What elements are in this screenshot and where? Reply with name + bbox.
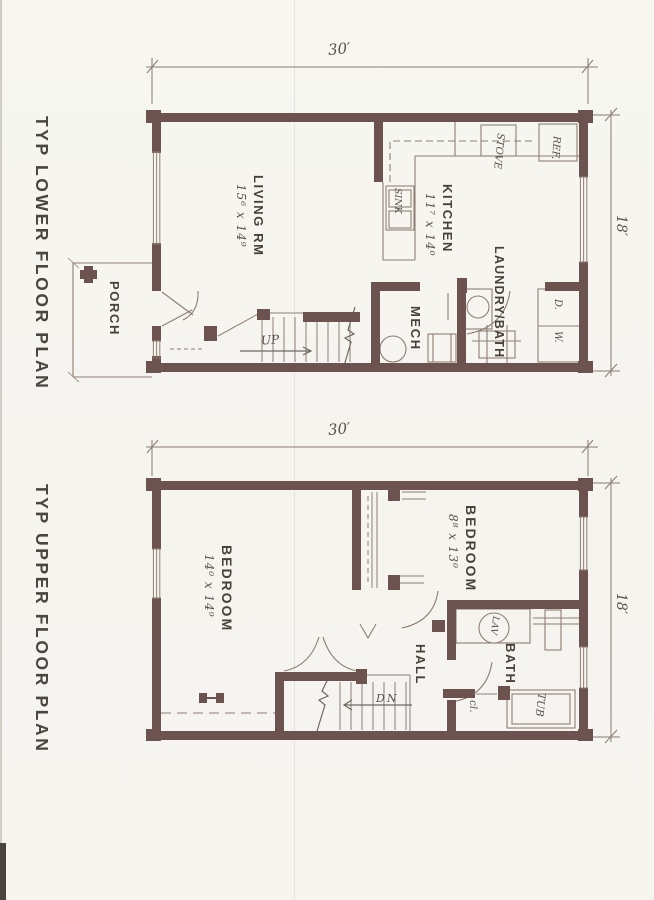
sink-label: SINK <box>392 188 403 214</box>
tub-label: TUB <box>533 692 547 717</box>
porch-post <box>80 266 97 283</box>
bedroom1-dims: 14⁰ x 14⁹ <box>202 554 216 632</box>
living-room-label: LIVING RM <box>251 175 266 257</box>
closet-wardrobe <box>368 492 426 588</box>
lower-plan-title: TYP LOWER FLOOR PLAN <box>31 116 52 390</box>
lower-plan-walls <box>146 110 593 373</box>
washer-label: W. <box>552 331 563 343</box>
bedroom2-dims: 8⁸ x 13⁰ <box>446 514 460 592</box>
bath-label: BATH <box>503 643 518 685</box>
water-heater-symbol <box>380 336 406 362</box>
lower-plan-windows <box>152 152 588 359</box>
upper-dim-width: 30′ <box>327 419 351 439</box>
fridge-label: REF. <box>549 136 562 160</box>
hall-label: HALL <box>413 644 428 685</box>
upper-plan-title: TYP UPPER FLOOR PLAN <box>31 484 52 753</box>
stairs-dn-label: DN <box>376 692 398 705</box>
bedroom2-label: BEDROOM <box>463 505 479 592</box>
kitchen-dims: 11⁷ x 14⁰ <box>423 193 437 257</box>
lower-plan <box>68 58 620 382</box>
closet-label: cl. <box>467 700 479 713</box>
bedroom2-label-group: 8⁸ x 13⁰ BEDROOM <box>446 505 479 592</box>
toilet-symbol-upper <box>533 610 581 650</box>
kitchen-label: KITCHEN <box>440 184 455 257</box>
upper-dim-height: 18′ <box>613 593 629 614</box>
floor-plan-sheet: TYP LOWER FLOOR PLAN TYP UPPER FLOOR PLA… <box>0 0 654 900</box>
lower-dim-height: 18′ <box>613 215 629 236</box>
kitchen-label-group: 11⁷ x 14⁰ KITCHEN <box>423 184 455 257</box>
bedroom1-label-group: 14⁰ x 14⁹ BEDROOM <box>202 545 235 632</box>
mech-label: MECH <box>408 306 423 351</box>
living-room-dims: 15⁶ x 14⁹ <box>234 184 248 257</box>
porch-label: PORCH <box>107 281 122 336</box>
furnace-symbol <box>428 334 456 362</box>
toilet-symbol <box>464 289 492 329</box>
entry-door <box>162 291 204 349</box>
dryer-label: D. <box>552 299 563 310</box>
lower-dim-width: 30′ <box>327 39 351 59</box>
laundry-bath-label: LAUNDRY/BATH <box>492 246 506 358</box>
bedroom1-label: BEDROOM <box>219 545 235 632</box>
stairs-up-label: UP <box>261 332 280 347</box>
living-room-label-group: 15⁶ x 14⁹ LIVING RM <box>234 175 266 257</box>
